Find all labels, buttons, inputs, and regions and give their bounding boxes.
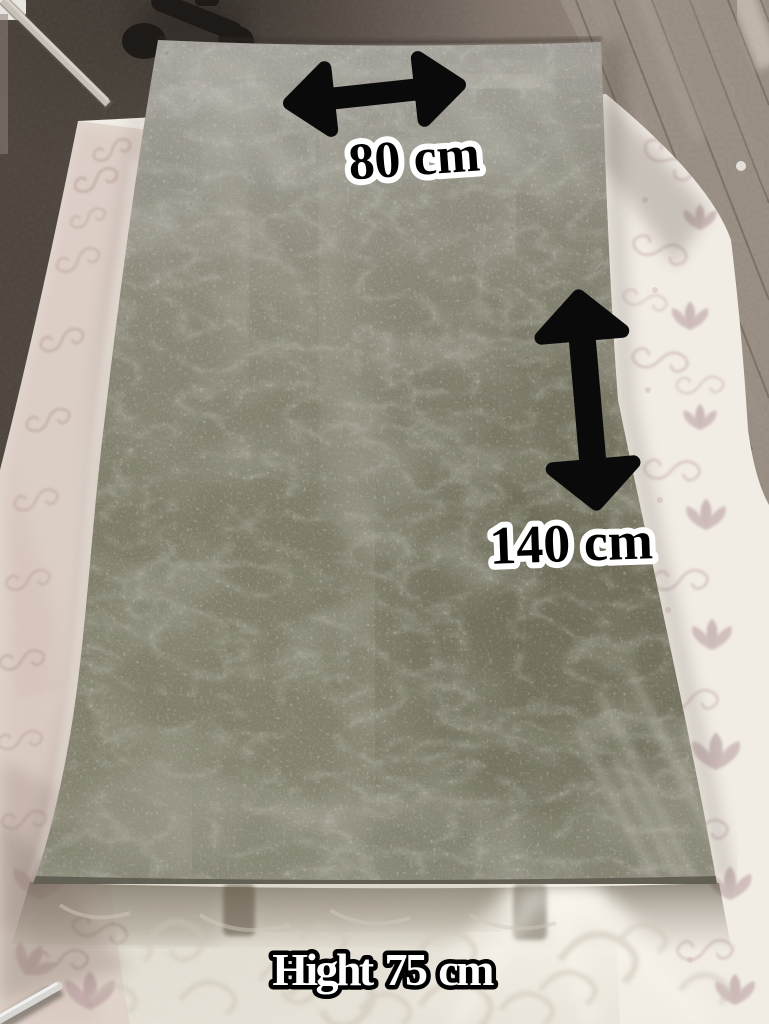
svg-text:140 cm: 140 cm — [488, 510, 653, 576]
svg-text:80 cm: 80 cm — [347, 125, 482, 191]
svg-text:Hight 75 cm: Hight 75 cm — [272, 944, 494, 995]
